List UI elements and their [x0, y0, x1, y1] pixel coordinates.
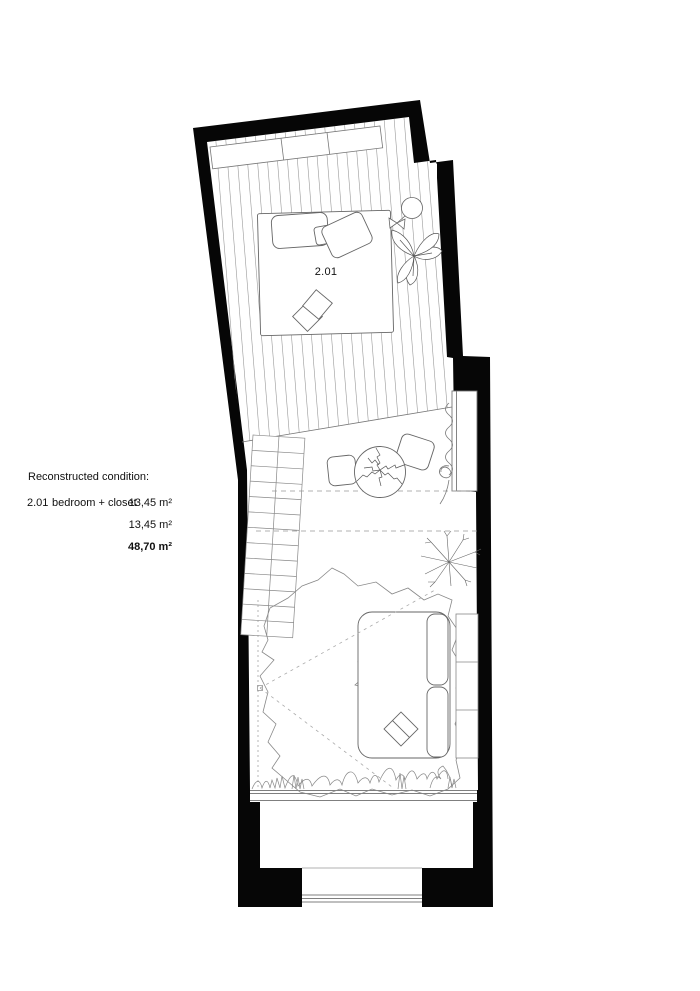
room-code: 2.01	[27, 497, 48, 509]
room-area: 13,45 m²	[92, 519, 172, 531]
round-table-plant	[355, 447, 406, 498]
stairs	[241, 435, 305, 638]
total-area: 48,70 m²	[92, 541, 172, 553]
monstera-plant	[392, 230, 442, 285]
room-number-label: 2.01	[306, 266, 346, 278]
branch-plant	[421, 531, 481, 587]
sofa	[358, 612, 450, 758]
floor-lamp	[389, 198, 423, 230]
room-area: 13,45 m²	[92, 497, 172, 509]
curtain	[439, 403, 452, 504]
shelf	[456, 614, 478, 758]
legend-title: Reconstructed condition:	[28, 471, 149, 483]
legend-row: 13,45 m²	[27, 519, 197, 531]
legend-row: 2.01 bedroom + closet 13,45 m²	[27, 497, 197, 509]
chair-left	[327, 455, 358, 487]
floor-plan-sheet: 2.01 Reconstructed condition: 2.01 bedro…	[0, 0, 700, 991]
legend: Reconstructed condition: 2.01 bedroom + …	[27, 471, 197, 561]
legend-row: 48,70 m²	[27, 541, 197, 553]
window-right	[452, 391, 477, 491]
plant-strip	[252, 766, 456, 789]
